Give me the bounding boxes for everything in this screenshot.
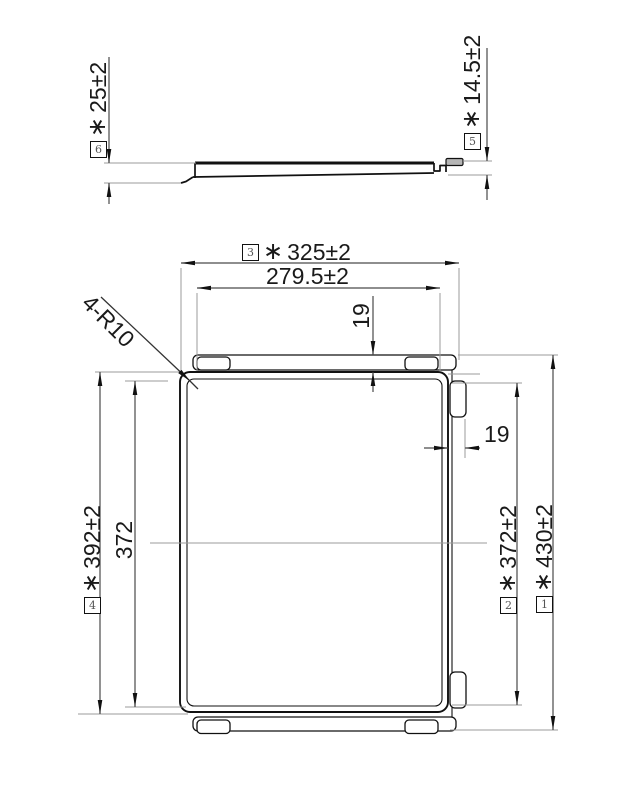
ref-box-2: 2 xyxy=(500,597,517,614)
tray-right-step xyxy=(434,163,446,172)
side-view xyxy=(104,48,492,204)
dim-label-19-top: 19 xyxy=(350,299,373,333)
right-bottom-tab xyxy=(450,672,466,708)
dim-label-392: 4 ∗ 392±2 xyxy=(80,496,104,614)
plan-view xyxy=(78,263,558,734)
top-right-foot xyxy=(405,357,438,370)
ref-box-1: 1 xyxy=(536,596,553,613)
ref-box-6: 6 xyxy=(90,141,107,158)
bottom-left-foot xyxy=(197,720,230,734)
ref-box-5: 5 xyxy=(464,133,481,150)
dim-label-14-5: 5 ∗ 14.5±2 xyxy=(460,40,484,150)
dim-value: 19 xyxy=(350,303,373,329)
asterisk: ∗ xyxy=(460,109,484,129)
top-left-foot xyxy=(197,357,230,370)
asterisk: ∗ xyxy=(263,240,283,264)
body-outline xyxy=(180,372,448,712)
dim-value: 372±2 xyxy=(497,505,520,569)
dim-label-372-left: 372 xyxy=(113,502,136,578)
dim-value: 19 xyxy=(484,423,510,446)
dim-value: 325±2 xyxy=(287,241,351,264)
dim-value: 430±2 xyxy=(533,504,556,568)
bottom-right-foot xyxy=(405,720,438,734)
asterisk: ∗ xyxy=(86,117,110,137)
ref-box-3: 3 xyxy=(242,244,259,261)
dim-value: 372 xyxy=(113,521,136,559)
dim-label-325: 3 ∗ 325±2 xyxy=(242,240,351,264)
dim-label-19-right: 19 xyxy=(484,423,510,446)
dim-label-279-5: 279.5±2 xyxy=(266,265,349,288)
dim-value: 279.5±2 xyxy=(266,265,349,288)
dim-label-430: 1 ∗ 430±2 xyxy=(532,495,556,613)
asterisk: ∗ xyxy=(496,573,520,593)
asterisk: ∗ xyxy=(532,572,556,592)
dim-label-372-right: 2 ∗ 372±2 xyxy=(496,496,520,614)
dim-value: 25±2 xyxy=(87,62,110,113)
tray-left-jog xyxy=(181,177,193,183)
rubber-pad xyxy=(446,159,463,166)
ref-box-4: 4 xyxy=(84,597,101,614)
asterisk: ∗ xyxy=(80,573,104,593)
dim-value: 392±2 xyxy=(81,505,104,569)
dim-label-25: 6 ∗ 25±2 xyxy=(86,54,110,158)
tray-bottom-edge xyxy=(193,173,434,177)
right-top-tab xyxy=(450,381,466,417)
technical-drawing-page: 6 ∗ 25±2 5 ∗ 14.5±2 3 ∗ 325±2 279.5±2 19… xyxy=(0,0,643,800)
dim-value: 14.5±2 xyxy=(461,35,484,105)
